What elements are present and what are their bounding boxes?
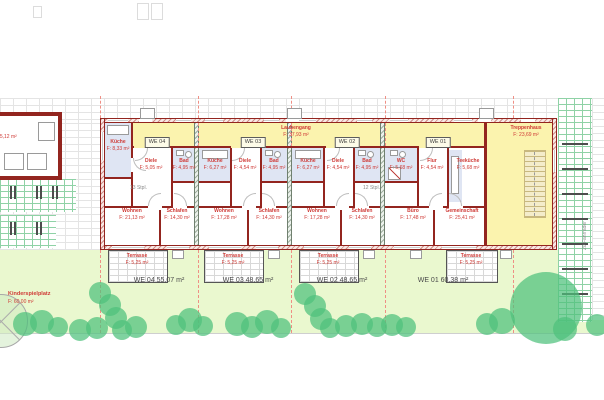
window bbox=[108, 119, 128, 122]
wall-segment bbox=[105, 177, 131, 179]
room-label-diele: DieleF: 4,54 m² bbox=[327, 158, 350, 172]
stair-walkline bbox=[534, 152, 535, 216]
window bbox=[349, 246, 371, 249]
wall-segment bbox=[199, 181, 230, 183]
wall-segment bbox=[355, 181, 380, 183]
wall-segment bbox=[0, 112, 62, 116]
bike-stand bbox=[10, 222, 12, 235]
terrace-label: TerrasseF: 5,25 m² bbox=[126, 253, 149, 267]
room-label-wohnen: WohnenF: 17,28 m² bbox=[211, 208, 237, 222]
we-label: WE 03 bbox=[241, 137, 266, 148]
wall-segment bbox=[171, 148, 173, 206]
unit-divider-dashline bbox=[291, 250, 292, 333]
door-opening bbox=[521, 119, 535, 122]
wall-segment bbox=[58, 112, 62, 180]
terrace-label: TerrasseF: 5,25 m² bbox=[317, 253, 340, 267]
toilet bbox=[176, 150, 184, 156]
wall-segment bbox=[247, 210, 249, 245]
room-label-kueche: KücheF: 6,27 m² bbox=[297, 158, 320, 172]
bike-stand bbox=[562, 143, 588, 145]
wall-segment bbox=[385, 181, 417, 183]
window bbox=[112, 246, 144, 249]
entrance-stoop bbox=[410, 250, 422, 259]
corridor-label: LaubengangF: 37,93 m² bbox=[281, 125, 311, 139]
furniture bbox=[4, 153, 24, 170]
door-opening bbox=[139, 119, 152, 122]
room-label-wohnen: WohnenF: 21,13 m² bbox=[119, 208, 145, 222]
room-label-buero: BüroF: 17,48 m² bbox=[400, 208, 426, 222]
unit-total-label: WE 02 48,65 m² bbox=[317, 277, 368, 284]
bush bbox=[125, 316, 147, 338]
toilet bbox=[265, 150, 273, 156]
we-label: WE 04 bbox=[145, 137, 170, 148]
window bbox=[209, 246, 241, 249]
room-label-bad: BadF: 4,95 m² bbox=[173, 158, 196, 172]
bike-stand bbox=[14, 222, 16, 235]
door-opening bbox=[478, 119, 491, 122]
window bbox=[390, 119, 408, 122]
furniture bbox=[38, 122, 55, 141]
wall-segment bbox=[417, 148, 419, 206]
wall-segment bbox=[433, 210, 435, 245]
window bbox=[304, 246, 336, 249]
bike-stand bbox=[36, 222, 38, 235]
parking-note: 12 Stpl. bbox=[363, 185, 380, 191]
room-label-bad: BadF: 4,95 m² bbox=[263, 158, 286, 172]
cropped-artifact bbox=[33, 6, 42, 18]
bike-stand bbox=[36, 186, 38, 199]
kitchen-counter bbox=[107, 125, 129, 135]
room-label-wc: WCF: 5,68 m² bbox=[390, 158, 413, 172]
window bbox=[205, 119, 223, 122]
window bbox=[167, 246, 189, 249]
room-label-schlafen: SchlafenF: 14,30 m² bbox=[256, 208, 282, 222]
room-label-teekueche: TeekücheF: 5,68 m² bbox=[457, 158, 480, 172]
room-label-gemeinschaft: GemeinschaftF: 25,41 m² bbox=[445, 208, 478, 222]
bush bbox=[553, 317, 577, 341]
wall-segment bbox=[131, 123, 133, 158]
wall-segment bbox=[340, 210, 342, 245]
window bbox=[454, 119, 472, 122]
room-label-wohnen: WohnenF: 17,28 m² bbox=[304, 208, 330, 222]
unit-total-label: WE 03 48,65 m² bbox=[223, 277, 274, 284]
terrace-label: TerrasseF: 5,25 m² bbox=[222, 253, 245, 267]
we-label: WE 01 bbox=[426, 137, 451, 148]
window bbox=[553, 150, 556, 172]
entrance-stoop bbox=[363, 250, 375, 259]
bush bbox=[586, 314, 604, 336]
unit-total-label: WE 04 55,07 m² bbox=[134, 277, 185, 284]
entrance-stoop bbox=[479, 108, 494, 119]
room-label-diele: DieleF: 4,54 m² bbox=[234, 158, 257, 172]
window bbox=[357, 119, 372, 122]
sink bbox=[399, 151, 406, 158]
cropped-artifact bbox=[137, 3, 149, 20]
window bbox=[298, 119, 316, 122]
bike-stand bbox=[40, 222, 42, 235]
parking-note: 13 Stpl. bbox=[130, 185, 147, 191]
window bbox=[442, 246, 476, 249]
playground-label: KinderspielplatzF: 60,00 m² bbox=[8, 290, 50, 307]
entrance-stoop bbox=[287, 108, 302, 119]
window bbox=[256, 246, 278, 249]
room-label-bad: BadF: 4,95 m² bbox=[356, 158, 379, 172]
stairwell-label: TreppenhausF: 23,69 m² bbox=[510, 125, 541, 139]
paving bbox=[592, 98, 604, 320]
floor-plan: F: 5,12 m² bbox=[0, 0, 604, 400]
bike-count-label: 20 Fahrräder bbox=[582, 190, 588, 250]
bush bbox=[193, 316, 213, 336]
sink bbox=[367, 151, 374, 158]
we-label: WE 02 bbox=[335, 137, 360, 148]
room-label-schlafen: SchlafenF: 14,30 m² bbox=[164, 208, 190, 222]
unit-divider-dashline bbox=[198, 123, 199, 146]
bike-stand bbox=[56, 186, 58, 199]
toilet bbox=[358, 150, 366, 156]
bush bbox=[48, 317, 68, 337]
sink bbox=[274, 151, 281, 158]
window bbox=[394, 246, 420, 249]
furniture bbox=[27, 153, 47, 170]
unit-total-label: WE 01 60,38 m² bbox=[418, 277, 469, 284]
stairs bbox=[524, 150, 546, 218]
wall-segment bbox=[323, 148, 325, 206]
sink bbox=[185, 151, 192, 158]
wall-segment bbox=[159, 210, 161, 245]
outbuilding-area-label: F: 5,12 m² bbox=[0, 134, 17, 140]
entrance-stoop bbox=[268, 250, 280, 259]
entrance-stoop bbox=[140, 108, 155, 119]
room-label-kueche: KücheF: 8,33 m² bbox=[107, 139, 130, 153]
bike-stand bbox=[562, 168, 588, 170]
bike-stand bbox=[40, 186, 42, 199]
bush bbox=[396, 317, 416, 337]
wall-segment bbox=[262, 181, 287, 183]
room-label-kueche: KücheF: 6,27 m² bbox=[204, 158, 227, 172]
bike-stand bbox=[10, 186, 12, 199]
wall-segment bbox=[484, 123, 487, 245]
window bbox=[101, 132, 104, 160]
bush bbox=[271, 318, 291, 338]
bike-rack-area bbox=[0, 215, 56, 248]
wall-segment bbox=[0, 176, 62, 180]
window bbox=[176, 119, 191, 122]
wall-segment bbox=[173, 181, 194, 183]
wall-segment bbox=[292, 181, 323, 183]
room-label-flur: FlurF: 4,54 m² bbox=[421, 158, 444, 172]
entrance-stoop bbox=[172, 250, 184, 259]
bike-stand bbox=[14, 186, 16, 199]
room-label-diele: DieleF: 5,05 m² bbox=[140, 158, 163, 172]
window bbox=[264, 119, 279, 122]
room-label-schlafen: SchlafenF: 14,30 m² bbox=[349, 208, 375, 222]
wall-segment bbox=[552, 118, 557, 250]
bike-stand bbox=[562, 268, 588, 270]
bike-stand bbox=[52, 186, 54, 199]
terrace-label: TerrasseF: 5,25 m² bbox=[460, 253, 483, 267]
entrance-stoop bbox=[500, 250, 512, 259]
unit-divider-dashline bbox=[385, 123, 386, 146]
toilet bbox=[390, 150, 398, 156]
cropped-artifact bbox=[151, 3, 163, 20]
door-opening bbox=[286, 119, 299, 122]
